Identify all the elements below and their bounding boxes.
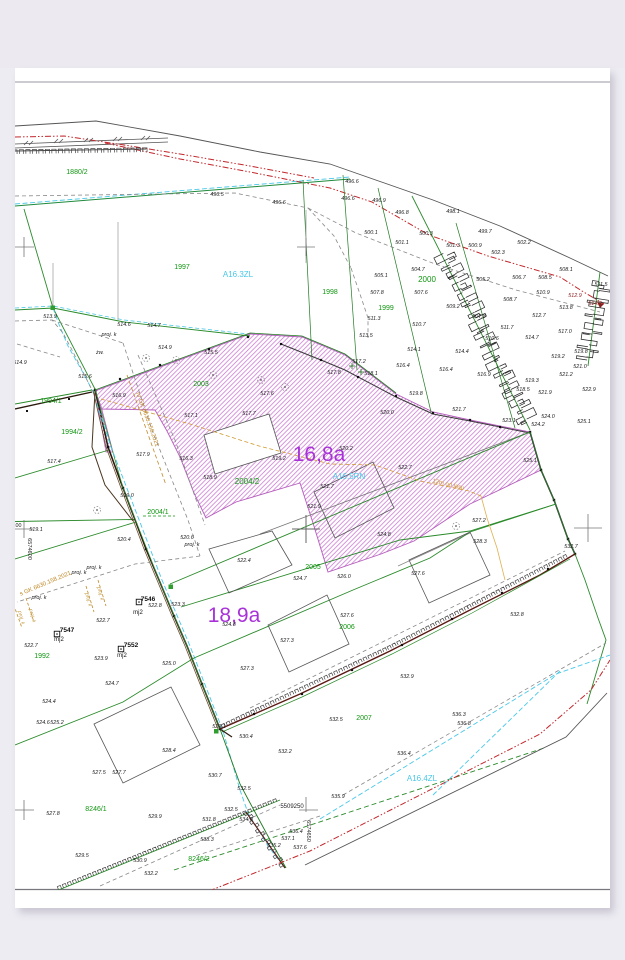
svg-text:534.0: 534.0 [239, 817, 253, 823]
svg-text:524.7: 524.7 [293, 576, 307, 582]
svg-text:514.1: 514.1 [407, 347, 421, 353]
svg-text:521.0: 521.0 [573, 364, 587, 370]
svg-text:A16.5RN: A16.5RN [333, 472, 366, 481]
svg-text:532.7: 532.7 [564, 544, 578, 550]
svg-text:517.8: 517.8 [327, 370, 341, 376]
svg-text:517.7: 517.7 [242, 411, 256, 417]
svg-text:508.7: 508.7 [503, 297, 517, 303]
svg-text:502.2: 502.2 [517, 240, 531, 246]
svg-text:A16.4ZL: A16.4ZL [407, 774, 438, 783]
svg-text:499.7: 499.7 [478, 229, 492, 235]
svg-text:527.6: 527.6 [411, 571, 425, 577]
svg-text:514.6: 514.6 [117, 322, 131, 328]
svg-text:520.0: 520.0 [380, 410, 394, 416]
svg-text:mj2: mj2 [133, 610, 143, 616]
svg-text:536.8: 536.8 [457, 721, 471, 727]
svg-text:525.0: 525.0 [162, 661, 176, 667]
svg-text:5509250: 5509250 [280, 804, 304, 810]
svg-text:1994/2: 1994/2 [61, 429, 83, 436]
svg-text:529.5: 529.5 [75, 853, 89, 859]
svg-text:523.3: 523.3 [171, 602, 185, 608]
svg-text:proj. k: proj. k [31, 595, 47, 601]
svg-text:511.3: 511.3 [367, 316, 380, 322]
svg-text:2003: 2003 [193, 381, 209, 388]
svg-text:519.8: 519.8 [574, 349, 588, 355]
svg-text:535.9: 535.9 [331, 794, 345, 800]
svg-text:511.7: 511.7 [500, 325, 514, 331]
svg-text:7552: 7552 [124, 642, 139, 649]
svg-text:524.4: 524.4 [42, 699, 56, 705]
svg-text:516.3: 516.3 [179, 456, 193, 462]
svg-text:527.6: 527.6 [340, 613, 354, 619]
svg-text:1998: 1998 [322, 289, 338, 296]
svg-text:502.3: 502.3 [491, 250, 505, 256]
svg-text:514.7: 514.7 [147, 323, 161, 329]
svg-text:532.5: 532.5 [224, 807, 238, 813]
svg-text:537.6: 537.6 [293, 845, 307, 851]
svg-text:510.7: 510.7 [412, 322, 426, 328]
svg-text:żw.: żw. [95, 350, 104, 356]
svg-text:501.1: 501.1 [395, 240, 409, 246]
svg-text:520.4: 520.4 [117, 537, 131, 543]
svg-text:508.5: 508.5 [538, 275, 552, 281]
svg-text:529.1: 529.1 [212, 724, 226, 730]
svg-text:516.9: 516.9 [112, 393, 126, 399]
svg-text:500.1: 500.1 [364, 230, 378, 236]
svg-text:522.7: 522.7 [96, 618, 110, 624]
svg-text:530.4: 530.4 [239, 734, 253, 740]
svg-text:1994/1: 1994/1 [40, 398, 62, 405]
svg-text:507.8: 507.8 [370, 290, 384, 296]
svg-text:6574600: 6574600 [26, 538, 32, 560]
svg-text:528.4: 528.4 [162, 748, 176, 754]
svg-text:532.5: 532.5 [237, 786, 251, 792]
svg-text:530.7: 530.7 [208, 773, 222, 779]
svg-text:537.1: 537.1 [281, 836, 295, 842]
svg-text:proj. k: proj. k [184, 542, 200, 548]
svg-text:517.1: 517.1 [184, 413, 198, 419]
svg-text:527.3: 527.3 [280, 638, 294, 644]
svg-text:proj. k: proj. k [71, 570, 87, 576]
svg-text:501.3: 501.3 [446, 243, 460, 249]
svg-text:2004/2: 2004/2 [235, 477, 260, 486]
svg-text:524.6: 524.6 [36, 720, 50, 726]
svg-text:509.2: 509.2 [446, 304, 460, 310]
svg-text:515.6: 515.6 [78, 374, 92, 380]
svg-text:2004/1: 2004/1 [147, 509, 169, 516]
svg-text:496.5: 496.5 [210, 192, 224, 198]
svg-text:527.5: 527.5 [92, 770, 106, 776]
svg-text:515.5: 515.5 [204, 350, 218, 356]
svg-text:8246/1: 8246/1 [85, 806, 107, 813]
svg-text:530.9: 530.9 [133, 858, 147, 864]
svg-text:525.1: 525.1 [577, 419, 591, 425]
svg-text:510.6: 510.6 [485, 336, 499, 342]
svg-text:516.4: 516.4 [439, 367, 453, 373]
svg-text:525.1: 525.1 [523, 458, 537, 464]
svg-text:522.7: 522.7 [398, 465, 412, 471]
svg-text:522.7: 522.7 [24, 643, 38, 649]
svg-text:521.2: 521.2 [559, 372, 573, 378]
svg-text:514.9: 514.9 [13, 360, 27, 366]
svg-text:508.1: 508.1 [559, 267, 573, 273]
svg-text:517.6: 517.6 [260, 391, 274, 397]
svg-text:524.8: 524.8 [377, 532, 391, 538]
svg-text:516.9: 516.9 [477, 372, 491, 378]
svg-text:16,8a: 16,8a [293, 443, 346, 466]
svg-text:mj2: mj2 [54, 637, 64, 643]
svg-text:500.3: 500.3 [419, 231, 433, 237]
svg-text:496.6: 496.6 [341, 196, 355, 202]
svg-text:1999: 1999 [378, 305, 394, 312]
svg-text:mj2: mj2 [117, 653, 127, 659]
svg-text:518.9: 518.9 [203, 475, 217, 481]
svg-text:8246/2: 8246/2 [188, 856, 210, 863]
svg-text:514.2: 514.2 [588, 301, 602, 307]
svg-text:7547: 7547 [60, 627, 75, 634]
svg-text:506.7: 506.7 [512, 275, 526, 281]
svg-text:513.9: 513.9 [43, 314, 57, 320]
svg-text:proj. k: proj. k [101, 332, 117, 338]
svg-text:519.0: 519.0 [120, 493, 134, 499]
svg-text:A16.3ZL: A16.3ZL [223, 270, 254, 279]
svg-text:520.6: 520.6 [180, 535, 194, 541]
svg-text:524.7: 524.7 [105, 681, 119, 687]
svg-text:513.8: 513.8 [559, 305, 573, 311]
svg-text:511.5: 511.5 [594, 282, 608, 288]
svg-text:529.9: 529.9 [148, 814, 162, 820]
svg-text:498.1: 498.1 [446, 209, 460, 215]
svg-text:513.5: 513.5 [359, 333, 373, 339]
svg-text:2005: 2005 [305, 564, 321, 571]
svg-text:514.9: 514.9 [158, 345, 172, 351]
svg-text:523.1: 523.1 [502, 418, 516, 424]
svg-text:496.6: 496.6 [272, 200, 286, 206]
svg-text:514.4: 514.4 [455, 349, 469, 355]
svg-text:532.9: 532.9 [400, 674, 414, 680]
svg-text:524.0: 524.0 [541, 414, 555, 420]
svg-text:532.2: 532.2 [144, 871, 158, 877]
svg-text:1880/2: 1880/2 [66, 169, 88, 176]
svg-text:516.4: 516.4 [396, 363, 410, 369]
svg-text:521.9: 521.9 [538, 390, 552, 396]
svg-text:528.3: 528.3 [473, 539, 487, 545]
svg-text:524.8: 524.8 [222, 622, 236, 628]
svg-text:527.2: 527.2 [472, 518, 486, 524]
svg-text:519.8: 519.8 [409, 391, 423, 397]
svg-text:536.3: 536.3 [452, 712, 466, 718]
svg-text:527.3: 527.3 [240, 666, 254, 672]
svg-text:519.2: 519.2 [551, 354, 565, 360]
svg-text:527.8: 527.8 [46, 811, 60, 817]
svg-text:535.2: 535.2 [267, 843, 281, 849]
svg-text:504.7: 504.7 [411, 267, 425, 273]
svg-text:505.1: 505.1 [374, 273, 388, 279]
svg-text:536.4: 536.4 [397, 751, 411, 757]
svg-text:522.8: 522.8 [148, 603, 162, 609]
svg-text:538.3: 538.3 [200, 837, 214, 843]
svg-text:2007: 2007 [356, 715, 372, 722]
svg-text:1997: 1997 [174, 264, 190, 271]
svg-text:514.7: 514.7 [525, 335, 539, 341]
svg-text:524.2: 524.2 [531, 422, 545, 428]
svg-text:1992: 1992 [34, 653, 50, 660]
svg-text:proj. k: proj. k [86, 565, 102, 571]
svg-text:518.5: 518.5 [516, 387, 530, 393]
svg-text:523.9: 523.9 [94, 656, 108, 662]
svg-text:536.4: 536.4 [289, 829, 303, 835]
svg-text:2006: 2006 [339, 624, 355, 631]
svg-text:517.2: 517.2 [352, 359, 366, 365]
svg-text:532.5: 532.5 [329, 717, 343, 723]
svg-text:496.6: 496.6 [345, 179, 359, 185]
svg-text:521.7: 521.7 [452, 407, 466, 413]
svg-text:510.9: 510.9 [536, 290, 550, 296]
svg-text:521.9: 521.9 [307, 504, 321, 510]
svg-text:520.2: 520.2 [339, 446, 353, 452]
svg-text:505.2: 505.2 [476, 277, 490, 283]
svg-text:525.2: 525.2 [50, 720, 64, 726]
svg-text:532.8: 532.8 [510, 612, 524, 618]
svg-text:526.0: 526.0 [337, 574, 351, 580]
svg-text:532.2: 532.2 [278, 749, 292, 755]
svg-text:512.9: 512.9 [568, 293, 582, 299]
svg-text:527.7: 527.7 [112, 770, 126, 776]
svg-text:496.8: 496.8 [395, 210, 409, 216]
svg-text:517.0: 517.0 [558, 329, 572, 335]
svg-text:512.7: 512.7 [532, 313, 546, 319]
svg-text:6574650: 6574650 [305, 820, 311, 842]
svg-text:519.3: 519.3 [525, 378, 539, 384]
svg-text:2000: 2000 [418, 275, 436, 284]
svg-text:519.1: 519.1 [29, 527, 43, 533]
svg-text:496.9: 496.9 [372, 198, 386, 204]
svg-text:522.9: 522.9 [582, 387, 596, 393]
svg-text:518.1: 518.1 [364, 371, 378, 377]
svg-text:507.8: 507.8 [472, 314, 486, 320]
svg-text:507.6: 507.6 [414, 290, 428, 296]
svg-text:531.8: 531.8 [202, 817, 216, 823]
svg-text:519.2: 519.2 [272, 456, 286, 462]
svg-text:7546: 7546 [141, 596, 156, 603]
svg-text:517.4: 517.4 [47, 459, 61, 465]
svg-text:517.9: 517.9 [136, 452, 150, 458]
svg-text:522.4: 522.4 [237, 558, 251, 564]
svg-text:521.7: 521.7 [320, 484, 334, 490]
svg-text:500.9: 500.9 [468, 243, 482, 249]
